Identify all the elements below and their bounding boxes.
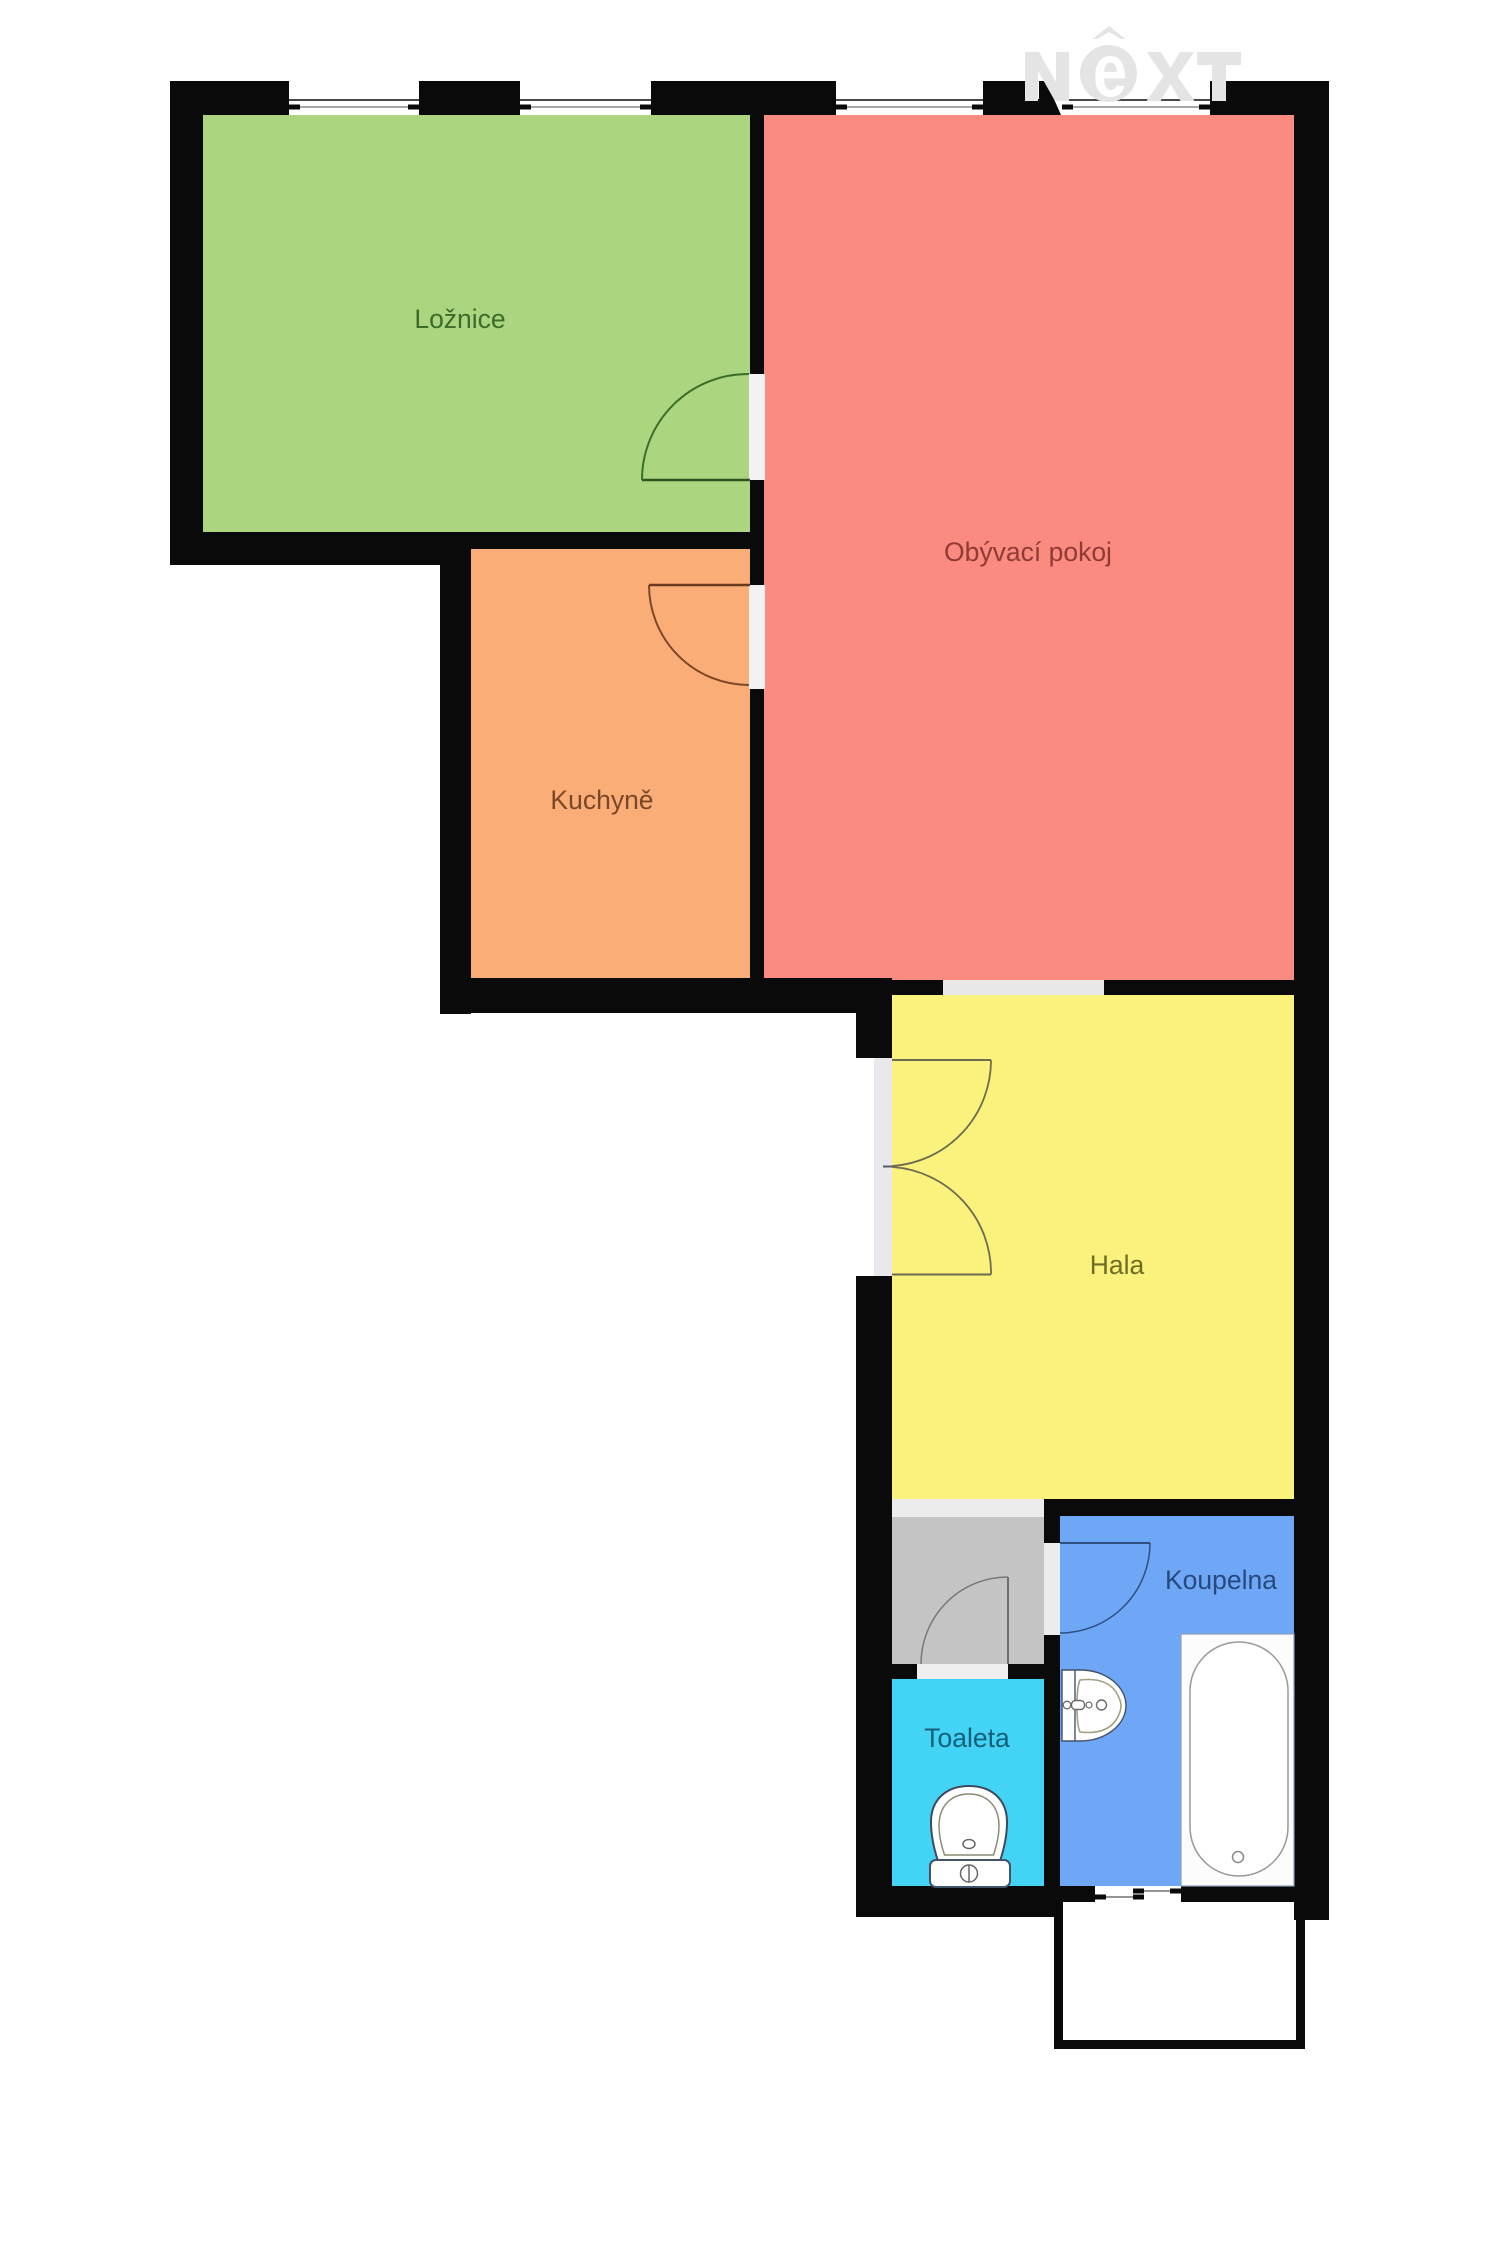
svg-text:Toaleta: Toaleta [924, 1723, 1010, 1753]
svg-text:Hala: Hala [1090, 1250, 1145, 1280]
svg-text:Koupelna: Koupelna [1165, 1565, 1277, 1595]
svg-text:Obývací pokoj: Obývací pokoj [944, 537, 1112, 567]
svg-text:e: e [1093, 29, 1127, 113]
svg-text:Ložnice: Ložnice [414, 304, 505, 334]
svg-text:Kuchyně: Kuchyně [550, 785, 653, 815]
